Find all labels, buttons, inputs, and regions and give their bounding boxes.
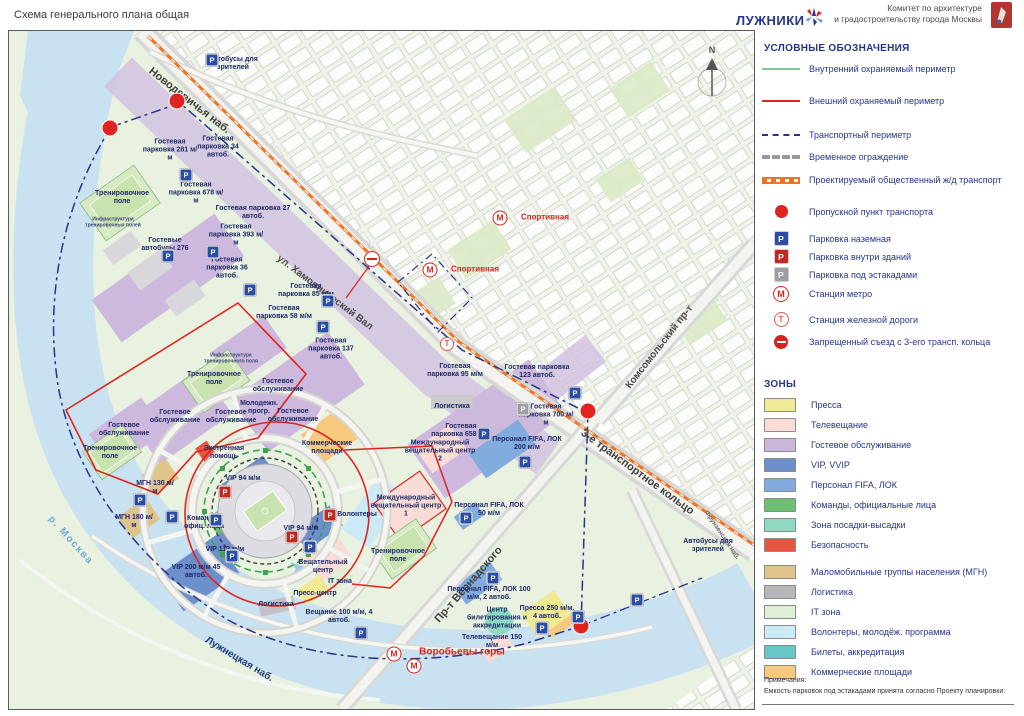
legend-label: Проектируемый общественный ж/д транспорт	[809, 175, 1002, 185]
zone-row: Волонтеры, молодёж. программа	[762, 625, 1018, 639]
legend-row-outer-perimeter: Внешний охраняемый периметр	[762, 96, 1018, 106]
zone-swatch	[764, 645, 796, 659]
no-entry-legend-icon	[774, 335, 788, 349]
inner-perimeter-line	[762, 68, 800, 70]
zone-label: Пресса	[811, 400, 842, 410]
legend-panel: УСЛОВНЫЕ ОБОЗНАЧЕНИЯ Внутренний охраняем…	[762, 30, 1018, 710]
zone-swatch	[764, 565, 796, 579]
zone-row: Пресса	[762, 398, 1018, 412]
legend-label: Внутренний охраняемый периметр	[809, 64, 955, 74]
zone-swatch	[764, 585, 796, 599]
committee-line2: и градостроительству города Москвы	[834, 14, 982, 25]
legend-label: Временное ограждение	[809, 152, 908, 162]
legend-row-parking-inside: P Парковка внутри зданий	[762, 249, 1018, 264]
zone-label: Персонал FIFA, ЛОК	[811, 480, 897, 490]
zone-label: Команды, официальные лица	[811, 500, 936, 510]
zone-swatch	[764, 418, 796, 432]
luzhniki-logo: ЛУЖНИКИ	[736, 6, 824, 28]
zone-row: Маломобильные группы населения (МГН)	[762, 565, 1018, 579]
legend-row-inner-perimeter: Внутренний охраняемый периметр	[762, 64, 1018, 74]
zone-label: VIP, VVIP	[811, 460, 850, 470]
zone-row: Команды, официальные лица	[762, 498, 1018, 512]
zone-row: Персонал FIFA, ЛОК	[762, 478, 1018, 492]
zone-row: Логистика	[762, 585, 1018, 599]
zone-swatch	[764, 398, 796, 412]
parking-under-icon: P	[774, 267, 789, 282]
temporary-fence-line	[762, 155, 800, 159]
legend-label: Парковка внутри зданий	[809, 252, 911, 262]
logo-star-icon	[804, 6, 824, 28]
zone-label: Телевещание	[811, 420, 868, 430]
legend-row-transport-perimeter: Транспортный периметр	[762, 130, 1018, 140]
legend-label: Станция железной дороги	[809, 315, 918, 325]
zone-row: VIP, VVIP	[762, 458, 1018, 472]
zone-swatch	[764, 498, 796, 512]
notes-text: Емкость парковок под эстакадами принята …	[764, 686, 1014, 697]
map-artwork	[9, 31, 754, 709]
legend-row-no-entry: Запрещенный съезд с 3-его трансп. кольца	[762, 335, 1018, 349]
outer-perimeter-line	[762, 100, 800, 102]
zone-label: Билеты, аккредитация	[811, 647, 905, 657]
legend-row-checkpoint: Пропускной пункт транспорта	[762, 205, 1018, 218]
notes-title: Примечания:	[764, 675, 1014, 686]
zones-title: ЗОНЫ	[764, 379, 1018, 390]
legend-label: Транспортный периметр	[809, 130, 911, 140]
legend-row-parking-under: P Парковка под эстакадами	[762, 267, 1018, 282]
zone-row: Зона посадки-высадки	[762, 518, 1018, 532]
committee-text: Комитет по архитектуре и градостроительс…	[834, 3, 982, 25]
legend-row-rail: Проектируемый общественный ж/д транспорт	[762, 175, 1018, 185]
legend-row-metro: М Станция метро	[762, 286, 1018, 302]
zone-row: Билеты, аккредитация	[762, 645, 1018, 659]
zone-label: IT зона	[811, 607, 840, 617]
map	[8, 30, 755, 710]
legend-row-rail-station: Т Станция железной дороги	[762, 312, 1018, 327]
legend-label: Пропускной пункт транспорта	[809, 207, 933, 217]
zone-label: Логистика	[811, 587, 853, 597]
rail-station-legend-icon: Т	[774, 312, 789, 327]
legend-notes: Примечания: Емкость парковок под эстакад…	[764, 675, 1014, 697]
legend-label: Парковка наземная	[809, 234, 891, 244]
legend-label: Внешний охраняемый периметр	[809, 96, 944, 106]
zone-swatch	[764, 605, 796, 619]
transport-perimeter-line	[762, 134, 800, 136]
zone-label: Гостевое обслуживание	[811, 440, 911, 450]
zone-label: Зона посадки-высадки	[811, 520, 906, 530]
zone-swatch	[764, 538, 796, 552]
logo-text: ЛУЖНИКИ	[736, 13, 804, 28]
zone-swatch	[764, 478, 796, 492]
zone-row: Гостевое обслуживание	[762, 438, 1018, 452]
zone-swatch	[764, 625, 796, 639]
parking-ground-icon: P	[774, 231, 789, 246]
zone-label: Безопасность	[811, 540, 868, 550]
legend-label: Парковка под эстакадами	[809, 270, 917, 280]
parking-inside-icon: P	[774, 249, 789, 264]
zone-swatch	[764, 458, 796, 472]
moscow-emblem-icon	[991, 2, 1012, 28]
zone-row: Безопасность	[762, 538, 1018, 552]
legend-row-parking-ground: P Парковка наземная	[762, 231, 1018, 246]
stadium	[202, 448, 329, 575]
checkpoint-dot	[775, 205, 788, 218]
legend-row-temp-fence: Временное ограждение	[762, 152, 1018, 162]
legend-title: УСЛОВНЫЕ ОБОЗНАЧЕНИЯ	[764, 43, 1018, 54]
page-title: Схема генерального плана общая	[14, 9, 189, 21]
zone-row: IT зона	[762, 605, 1018, 619]
metro-legend-icon: М	[773, 286, 789, 302]
legend-bottom-rule	[762, 704, 1014, 705]
zone-swatch	[764, 518, 796, 532]
zone-swatch	[764, 438, 796, 452]
committee-line1: Комитет по архитектуре	[834, 3, 982, 14]
rail-transport-line	[762, 177, 800, 184]
header: Схема генерального плана общая ЛУЖНИКИ К…	[0, 0, 1024, 30]
zone-row: Телевещание	[762, 418, 1018, 432]
legend-label: Станция метро	[809, 289, 872, 299]
zone-label: Волонтеры, молодёж. программа	[811, 627, 951, 637]
zone-label: Маломобильные группы населения (МГН)	[811, 567, 987, 577]
legend-label: Запрещенный съезд с 3-его трансп. кольца	[809, 337, 990, 347]
